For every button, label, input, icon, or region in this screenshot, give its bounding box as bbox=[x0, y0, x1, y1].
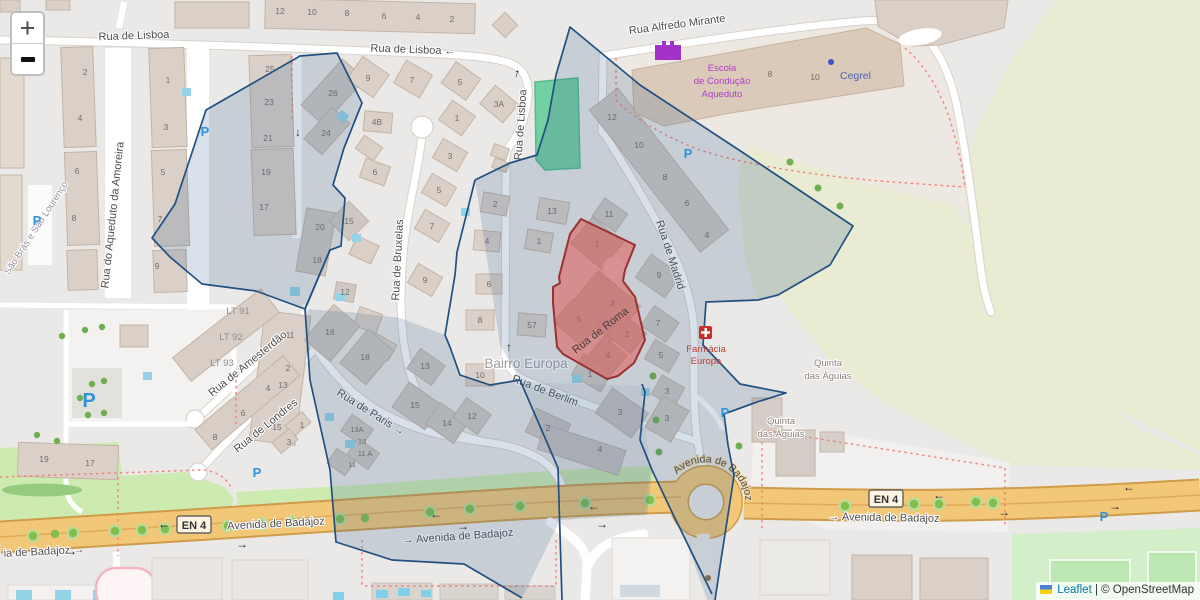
svg-text:Rua de Lisboa: Rua de Lisboa bbox=[98, 29, 170, 43]
svg-text:3: 3 bbox=[448, 151, 453, 161]
svg-text:←: ← bbox=[158, 517, 170, 531]
svg-text:4B: 4B bbox=[372, 117, 383, 127]
svg-text:10: 10 bbox=[810, 72, 820, 82]
svg-text:8: 8 bbox=[72, 213, 77, 223]
svg-text:LT 93: LT 93 bbox=[210, 358, 233, 369]
svg-text:1: 1 bbox=[455, 113, 460, 123]
svg-text:Quinta: Quinta bbox=[814, 358, 843, 369]
svg-text:9: 9 bbox=[366, 73, 371, 83]
svg-text:7: 7 bbox=[410, 75, 415, 85]
svg-text:Quinta: Quinta bbox=[767, 416, 796, 427]
svg-text:4: 4 bbox=[266, 383, 271, 393]
svg-text:17: 17 bbox=[85, 458, 95, 468]
svg-text:6: 6 bbox=[373, 167, 378, 177]
svg-text:P: P bbox=[253, 465, 262, 480]
svg-text:Aqueduto: Aqueduto bbox=[702, 89, 743, 100]
svg-text:de Condução: de Condução bbox=[694, 76, 751, 87]
svg-text:→: → bbox=[998, 505, 1010, 519]
svg-text:Europa: Europa bbox=[691, 356, 722, 367]
svg-text:5: 5 bbox=[437, 185, 442, 195]
svg-text:1: 1 bbox=[300, 420, 305, 430]
svg-text:P: P bbox=[1100, 509, 1109, 524]
svg-text:19: 19 bbox=[39, 454, 49, 464]
svg-text:Cegrel: Cegrel bbox=[840, 70, 871, 82]
svg-text:9: 9 bbox=[423, 275, 428, 285]
svg-text:Farmácia: Farmácia bbox=[686, 344, 726, 355]
svg-text:das Águias: das Águias bbox=[804, 371, 851, 382]
svg-text:P: P bbox=[684, 146, 693, 161]
svg-text:→ Avenida de Badajoz: → Avenida de Badajoz bbox=[828, 511, 939, 525]
svg-text:6: 6 bbox=[241, 408, 246, 418]
svg-text:8: 8 bbox=[345, 8, 350, 18]
svg-text:→: → bbox=[65, 544, 77, 558]
svg-text:4: 4 bbox=[416, 12, 421, 22]
svg-text:2: 2 bbox=[450, 14, 455, 24]
svg-text:2: 2 bbox=[83, 67, 88, 77]
svg-text:→: → bbox=[236, 537, 248, 551]
svg-text:3: 3 bbox=[164, 122, 169, 132]
svg-text:7: 7 bbox=[430, 221, 435, 231]
svg-text:6: 6 bbox=[75, 166, 80, 176]
svg-text:→: → bbox=[1109, 499, 1121, 513]
svg-text:9: 9 bbox=[155, 261, 160, 271]
svg-text:3A: 3A bbox=[494, 99, 505, 109]
svg-text:3: 3 bbox=[287, 437, 292, 447]
svg-text:8: 8 bbox=[478, 315, 483, 325]
svg-text:5: 5 bbox=[458, 77, 463, 87]
svg-text:5: 5 bbox=[161, 167, 166, 177]
svg-text:LT 92: LT 92 bbox=[219, 332, 242, 343]
svg-text:P: P bbox=[201, 124, 210, 139]
svg-text:Escola: Escola bbox=[708, 63, 737, 74]
svg-text:←: ← bbox=[1123, 480, 1135, 494]
svg-text:P: P bbox=[721, 405, 730, 420]
svg-text:P: P bbox=[33, 213, 42, 228]
svg-text:EN 4: EN 4 bbox=[874, 494, 899, 506]
svg-text:4: 4 bbox=[78, 113, 83, 123]
svg-text:15: 15 bbox=[344, 216, 354, 226]
svg-text:EN 4: EN 4 bbox=[182, 520, 207, 532]
svg-text:P: P bbox=[82, 390, 95, 412]
svg-text:12: 12 bbox=[340, 287, 350, 297]
svg-text:→: → bbox=[596, 517, 608, 531]
svg-text:8: 8 bbox=[768, 69, 773, 79]
svg-text:1: 1 bbox=[166, 75, 171, 85]
svg-text:12: 12 bbox=[275, 6, 285, 16]
svg-text:←: ← bbox=[933, 488, 945, 502]
svg-text:LT 91: LT 91 bbox=[226, 306, 249, 317]
svg-text:8: 8 bbox=[213, 432, 218, 442]
svg-text:10: 10 bbox=[307, 7, 317, 17]
svg-text:13: 13 bbox=[278, 380, 288, 390]
svg-text:6: 6 bbox=[382, 11, 387, 21]
svg-text:das Águias: das Águias bbox=[757, 429, 804, 440]
svg-text:2: 2 bbox=[286, 363, 291, 373]
svg-text:10: 10 bbox=[475, 370, 485, 380]
